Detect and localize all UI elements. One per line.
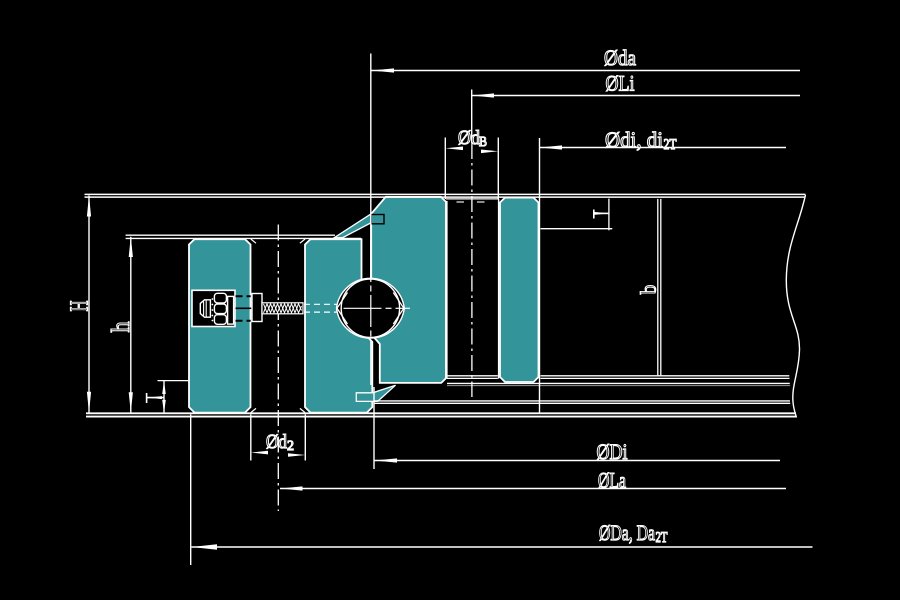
svg-text:B: B <box>479 135 487 150</box>
svg-text:2T: 2T <box>656 530 668 546</box>
svg-text:ØDi: ØDi <box>597 439 628 464</box>
svg-text:2T: 2T <box>664 137 677 153</box>
svg-text:Ød: Ød <box>458 127 480 149</box>
svg-text:Ød: Ød <box>266 431 287 453</box>
svg-text:ØLa: ØLa <box>598 468 626 493</box>
svg-text:ØLi: ØLi <box>606 71 635 96</box>
svg-text:b: b <box>636 285 661 295</box>
svg-text:Øda: Øda <box>604 45 636 70</box>
svg-text:2: 2 <box>287 439 294 454</box>
svg-text:Ødi, di: Ødi, di <box>605 127 663 152</box>
svg-text:H: H <box>65 300 94 311</box>
svg-text:ØDa, Da: ØDa, Da <box>599 520 655 545</box>
svg-text:h: h <box>106 322 135 333</box>
